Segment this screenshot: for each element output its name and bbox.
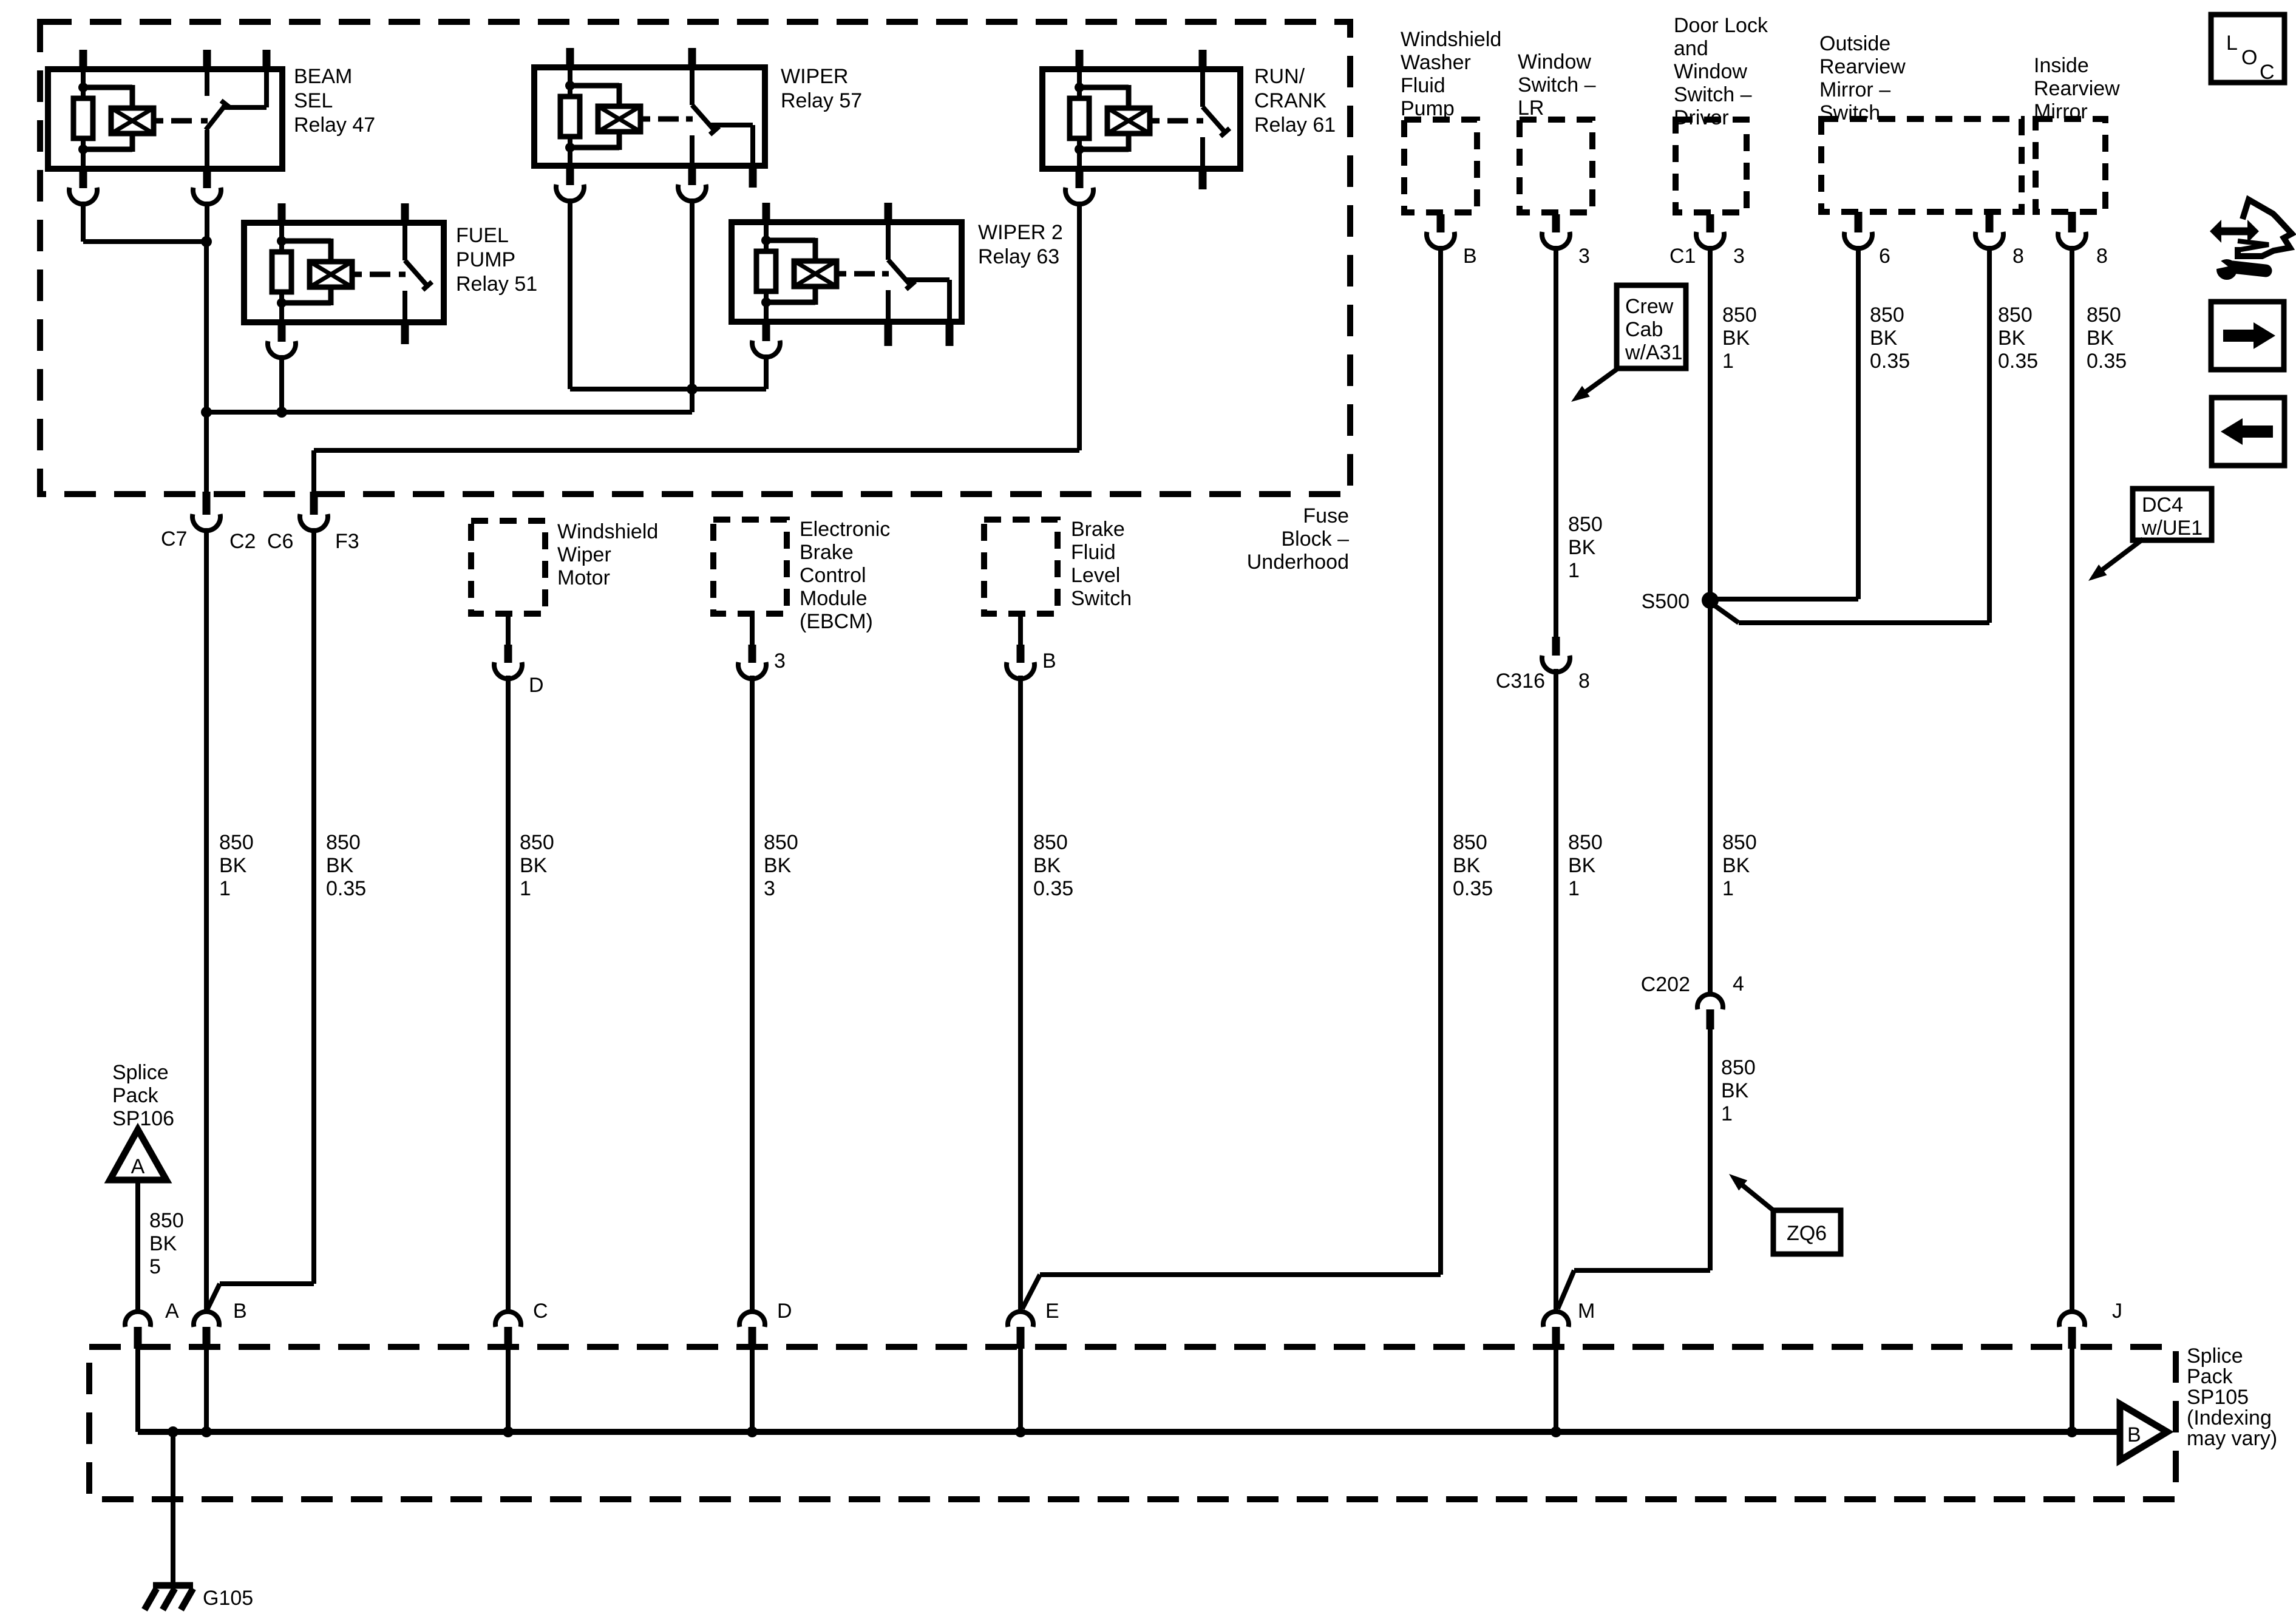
svg-text:C6: C6: [267, 530, 293, 553]
svg-text:SEL: SEL: [294, 89, 333, 112]
svg-text:Relay 51: Relay 51: [456, 273, 537, 296]
svg-text:Control: Control: [800, 564, 866, 587]
svg-text:0.35: 0.35: [1033, 877, 1073, 900]
svg-text:Mirror: Mirror: [2034, 100, 2088, 123]
svg-text:850: 850: [2087, 303, 2121, 327]
svg-text:Fluid: Fluid: [1401, 74, 1445, 97]
svg-text:850: 850: [1568, 831, 1603, 854]
svg-text:Switch: Switch: [1071, 587, 1132, 610]
svg-text:Relay 57: Relay 57: [781, 89, 862, 112]
svg-text:850: 850: [1453, 831, 1487, 854]
svg-text:BK: BK: [149, 1232, 177, 1255]
svg-text:1: 1: [1721, 1102, 1733, 1125]
svg-text:DC4: DC4: [2142, 493, 2183, 517]
svg-text:850: 850: [219, 831, 254, 854]
svg-text:Brake: Brake: [800, 541, 854, 564]
svg-text:FUEL: FUEL: [456, 224, 509, 247]
svg-text:Splice: Splice: [2187, 1344, 2243, 1368]
svg-text:8: 8: [2096, 245, 2108, 268]
svg-text:BK: BK: [764, 854, 792, 877]
svg-text:850: 850: [764, 831, 798, 854]
svg-text:may vary): may vary): [2187, 1427, 2277, 1450]
svg-text:Rearview: Rearview: [2034, 77, 2120, 100]
svg-text:BK: BK: [1568, 854, 1596, 877]
svg-text:Windshield: Windshield: [557, 520, 658, 543]
svg-text:Module: Module: [800, 587, 868, 610]
svg-text:BK: BK: [1870, 327, 1898, 350]
svg-text:C7: C7: [161, 527, 187, 551]
svg-text:Block –: Block –: [1282, 527, 1350, 551]
svg-text:C: C: [533, 1300, 548, 1323]
svg-text:BK: BK: [326, 854, 354, 877]
svg-text:8: 8: [2012, 245, 2024, 268]
svg-text:1: 1: [1722, 877, 1734, 900]
svg-text:0.35: 0.35: [1998, 350, 2038, 373]
svg-text:Window: Window: [1518, 50, 1591, 73]
svg-text:BK: BK: [1568, 536, 1596, 559]
svg-text:SP106: SP106: [112, 1107, 174, 1130]
svg-text:850: 850: [326, 831, 361, 854]
svg-text:L: L: [2226, 32, 2238, 55]
svg-text:B: B: [1463, 245, 1477, 268]
svg-text:0.35: 0.35: [1870, 350, 1910, 373]
svg-text:Pack: Pack: [2187, 1365, 2233, 1388]
svg-text:A: A: [165, 1300, 179, 1323]
svg-text:and: and: [1674, 37, 1708, 60]
svg-text:Cab: Cab: [1625, 318, 1663, 341]
svg-text:BEAM: BEAM: [294, 65, 352, 88]
svg-text:BK: BK: [1721, 1079, 1749, 1102]
svg-text:850: 850: [149, 1209, 184, 1232]
svg-text:Rearview: Rearview: [1819, 55, 1906, 78]
svg-text:D: D: [529, 674, 544, 697]
svg-text:Outside: Outside: [1819, 32, 1890, 55]
svg-text:Relay 47: Relay 47: [294, 114, 375, 137]
svg-text:850: 850: [1870, 303, 1904, 327]
svg-text:Switch –: Switch –: [1674, 83, 1752, 106]
svg-text:S500: S500: [1642, 590, 1690, 613]
svg-text:3: 3: [1578, 245, 1590, 268]
svg-text:C316: C316: [1496, 670, 1545, 693]
svg-text:A: A: [131, 1155, 145, 1178]
svg-text:0.35: 0.35: [2087, 350, 2127, 373]
svg-text:Switch: Switch: [1819, 101, 1880, 124]
svg-text:Windshield: Windshield: [1401, 28, 1501, 51]
svg-text:G105: G105: [203, 1587, 253, 1610]
svg-text:Relay 61: Relay 61: [1254, 114, 1336, 137]
svg-text:M: M: [1578, 1300, 1595, 1323]
svg-text:850: 850: [520, 831, 554, 854]
svg-text:3: 3: [764, 877, 775, 900]
svg-text:Driver: Driver: [1674, 106, 1729, 129]
svg-text:BK: BK: [520, 854, 548, 877]
svg-text:Door Lock: Door Lock: [1674, 14, 1768, 37]
svg-text:0.35: 0.35: [1453, 877, 1493, 900]
svg-text:C2: C2: [229, 530, 256, 553]
svg-text:Level: Level: [1071, 564, 1120, 587]
svg-text:3: 3: [1733, 245, 1745, 268]
svg-text:w/UE1: w/UE1: [2141, 517, 2203, 540]
svg-text:WIPER 2: WIPER 2: [978, 221, 1063, 244]
svg-text:Fluid: Fluid: [1071, 541, 1116, 564]
svg-text:Pack: Pack: [112, 1084, 159, 1107]
svg-text:1: 1: [219, 877, 231, 900]
svg-text:8: 8: [1578, 670, 1590, 693]
svg-text:SP105: SP105: [2187, 1386, 2249, 1409]
svg-text:1: 1: [1568, 559, 1580, 582]
svg-text:(EBCM): (EBCM): [800, 610, 873, 633]
svg-text:E: E: [1045, 1300, 1059, 1323]
svg-text:D: D: [777, 1300, 792, 1323]
svg-text:BK: BK: [2087, 327, 2114, 350]
svg-text:4: 4: [1733, 972, 1744, 995]
svg-text:Window: Window: [1674, 60, 1747, 83]
svg-text:1: 1: [1568, 877, 1580, 900]
svg-text:BK: BK: [219, 854, 247, 877]
svg-text:6: 6: [1879, 245, 1890, 268]
svg-text:B: B: [1042, 649, 1056, 673]
svg-text:Crew: Crew: [1625, 295, 1674, 318]
svg-text:BK: BK: [1453, 854, 1481, 877]
svg-text:B: B: [233, 1300, 247, 1323]
svg-text:Washer: Washer: [1401, 51, 1471, 74]
svg-text:1: 1: [520, 877, 531, 900]
svg-text:O: O: [2241, 46, 2257, 69]
svg-text:LR: LR: [1518, 97, 1544, 120]
svg-text:(Indexing: (Indexing: [2187, 1406, 2272, 1429]
svg-text:BK: BK: [1998, 327, 2026, 350]
svg-text:Fuse: Fuse: [1303, 504, 1349, 527]
svg-text:w/A31: w/A31: [1625, 341, 1683, 364]
svg-text:850: 850: [1568, 513, 1603, 536]
svg-text:CRANK: CRANK: [1254, 89, 1326, 112]
svg-text:WIPER: WIPER: [781, 65, 848, 88]
svg-text:Electronic: Electronic: [800, 518, 890, 541]
svg-text:Wiper: Wiper: [557, 543, 611, 566]
svg-text:Pump: Pump: [1401, 97, 1455, 120]
svg-text:1: 1: [1722, 350, 1734, 373]
svg-text:850: 850: [1998, 303, 2033, 327]
svg-text:BK: BK: [1722, 327, 1750, 350]
svg-text:J: J: [2112, 1300, 2122, 1323]
svg-text:850: 850: [1033, 831, 1068, 854]
svg-text:F3: F3: [335, 530, 359, 553]
svg-text:Mirror –: Mirror –: [1819, 78, 1890, 101]
svg-text:BK: BK: [1033, 854, 1061, 877]
svg-text:C: C: [2260, 61, 2275, 84]
svg-text:B: B: [2127, 1423, 2141, 1446]
svg-text:Underhood: Underhood: [1247, 551, 1349, 574]
svg-text:Brake: Brake: [1071, 518, 1125, 541]
svg-text:PUMP: PUMP: [456, 248, 515, 271]
svg-text:850: 850: [1722, 831, 1757, 854]
svg-text:Inside: Inside: [2034, 54, 2089, 77]
svg-text:850: 850: [1721, 1056, 1756, 1079]
svg-text:Motor: Motor: [557, 566, 610, 589]
svg-text:850: 850: [1722, 303, 1757, 327]
svg-text:RUN/: RUN/: [1254, 65, 1305, 88]
svg-text:Switch –: Switch –: [1518, 73, 1596, 97]
svg-text:Relay 63: Relay 63: [978, 245, 1059, 268]
svg-text:Splice: Splice: [112, 1061, 169, 1084]
svg-text:ZQ6: ZQ6: [1787, 1222, 1827, 1245]
svg-text:0.35: 0.35: [326, 877, 366, 900]
svg-text:C202: C202: [1641, 973, 1690, 996]
svg-text:5: 5: [149, 1255, 161, 1278]
svg-text:BK: BK: [1722, 854, 1750, 877]
svg-text:C1: C1: [1669, 245, 1696, 268]
svg-text:3: 3: [774, 649, 786, 673]
